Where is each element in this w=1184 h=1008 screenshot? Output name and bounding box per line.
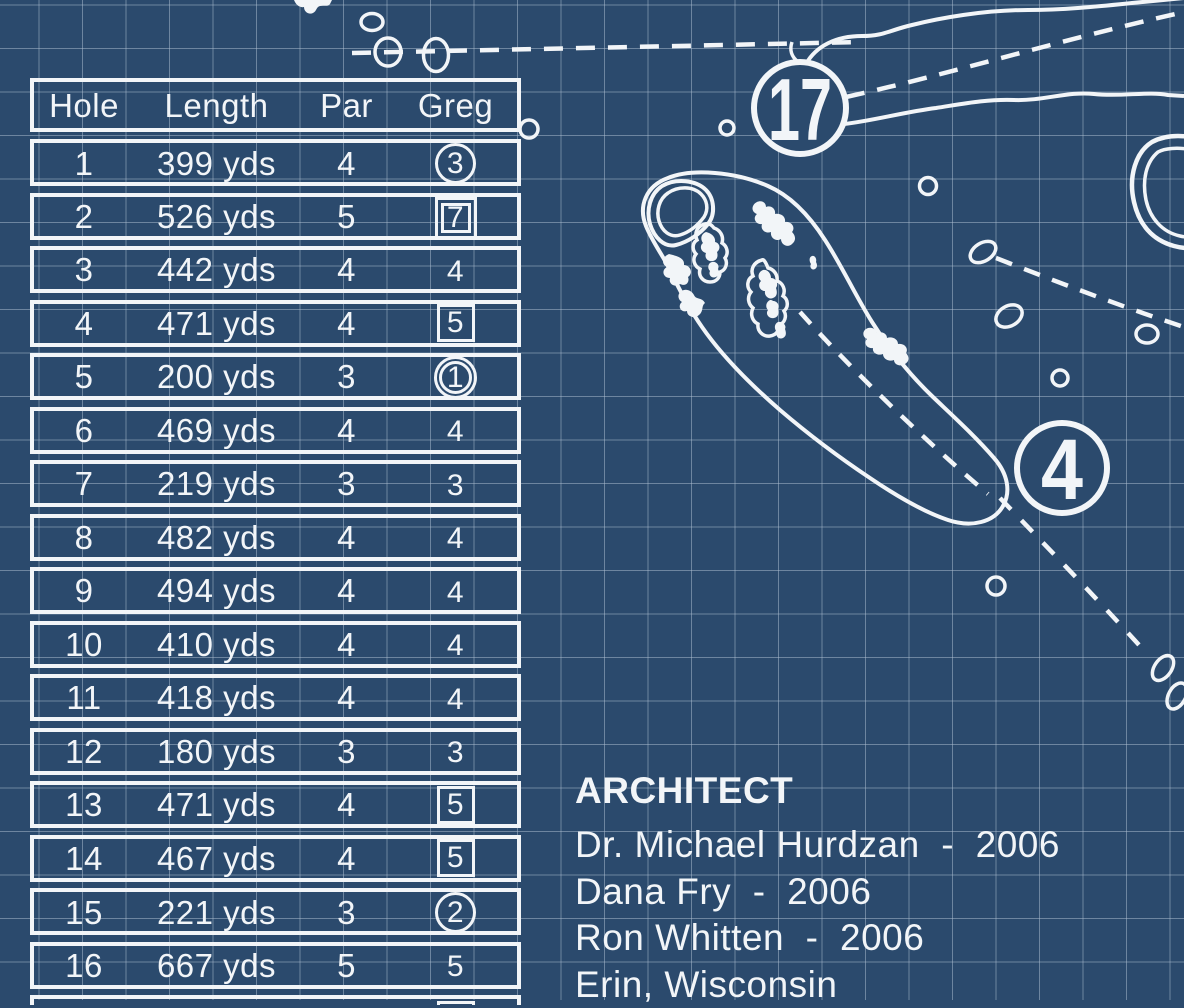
score-marker-circle: 2 bbox=[435, 892, 476, 933]
tee-ellipse bbox=[1163, 680, 1184, 713]
cell-score: 4 bbox=[447, 681, 464, 715]
score-value: 4 bbox=[447, 631, 464, 661]
cell-score: 2 bbox=[435, 892, 476, 933]
architect-line: Erin, Wisconsin bbox=[575, 962, 1060, 1008]
architect-line: Ron Whitten - 2006 bbox=[575, 915, 1060, 962]
small-circle bbox=[920, 178, 937, 195]
cell-par: 3 bbox=[337, 896, 356, 929]
tee-ellipse bbox=[1148, 652, 1178, 685]
leader-line bbox=[791, 42, 798, 62]
cell-hole: 2 bbox=[75, 200, 94, 233]
target-line bbox=[996, 258, 1184, 327]
score-marker-circle: 3 bbox=[435, 143, 476, 184]
bunker bbox=[701, 232, 720, 261]
cell-par: 4 bbox=[337, 307, 356, 340]
cell-length: 221 yds bbox=[157, 896, 276, 929]
cell-hole: 9 bbox=[75, 574, 94, 607]
architect-heading: ARCHITECT bbox=[575, 770, 1060, 812]
cell-score: 4 bbox=[447, 413, 464, 447]
cell-hole: 5 bbox=[75, 360, 94, 393]
cell-hole: 8 bbox=[75, 521, 94, 554]
small-circle bbox=[1136, 325, 1158, 343]
table-row: 15221 yds32 bbox=[30, 888, 521, 935]
tee-ellipse bbox=[424, 39, 449, 72]
header-length: Length bbox=[165, 89, 269, 122]
cell-length: 399 yds bbox=[157, 147, 276, 180]
table-row: 2526 yds57 bbox=[30, 193, 521, 240]
cell-par: 4 bbox=[337, 628, 356, 661]
tee-ellipse bbox=[992, 300, 1026, 331]
cell-score: 3 bbox=[447, 467, 464, 501]
bunker bbox=[294, 0, 332, 14]
cell-length: 219 yds bbox=[157, 467, 276, 500]
table-row: 4471 yds45 bbox=[30, 300, 521, 347]
score-value: 4 bbox=[447, 578, 464, 608]
score-marker-square bbox=[437, 1001, 475, 1005]
hole-4-label: 4 bbox=[1041, 422, 1083, 518]
cell-score: 1 bbox=[439, 359, 472, 395]
tee-ellipse bbox=[361, 14, 383, 31]
cell-length: 467 yds bbox=[157, 842, 276, 875]
score-value: 4 bbox=[447, 524, 464, 554]
bunker bbox=[708, 262, 719, 278]
cell-hole: 15 bbox=[65, 896, 103, 929]
cell-hole: 4 bbox=[75, 307, 94, 340]
table-row: 12180 yds33 bbox=[30, 728, 521, 775]
cell-length: 471 yds bbox=[157, 788, 276, 821]
cell-par: 5 bbox=[337, 200, 356, 233]
header-greg: Greg bbox=[418, 89, 493, 122]
cell-length: 494 yds bbox=[157, 574, 276, 607]
cell-par: 3 bbox=[337, 735, 356, 768]
scorecard: Hole Length Par Greg 1399 yds432526 yds5… bbox=[30, 78, 521, 1005]
cell-par: 3 bbox=[337, 360, 356, 393]
fairway-17-upper-edge bbox=[806, 0, 1184, 64]
cell-score: 4 bbox=[447, 574, 464, 608]
cell-hole: 3 bbox=[75, 253, 94, 286]
table-row: 16667 yds55 bbox=[30, 942, 521, 989]
score-marker-double-square: 7 bbox=[441, 203, 471, 233]
cell-length: 482 yds bbox=[157, 521, 276, 554]
cell-score: 4 bbox=[447, 520, 464, 554]
hole-17-label: 17 bbox=[768, 60, 832, 159]
table-row: 8482 yds44 bbox=[30, 514, 521, 561]
cell-score: 5 bbox=[447, 948, 464, 982]
score-marker-square: 5 bbox=[437, 839, 475, 877]
architect-line: Dr. Michael Hurdzan - 2006 bbox=[575, 822, 1060, 869]
cell-length: 200 yds bbox=[157, 360, 276, 393]
scorecard-rows: 1399 yds432526 yds573442 yds444471 yds45… bbox=[30, 139, 521, 1005]
small-circle bbox=[1052, 370, 1068, 386]
cell-length: 471 yds bbox=[157, 307, 276, 340]
header-par: Par bbox=[320, 89, 373, 122]
table-row-partial bbox=[30, 995, 521, 1005]
cell-hole: 6 bbox=[75, 414, 94, 447]
cell-hole: 10 bbox=[65, 628, 103, 661]
header-hole: Hole bbox=[49, 89, 119, 122]
hole-17-marker: 17 bbox=[754, 60, 846, 159]
score-value: 3 bbox=[447, 471, 464, 501]
fairway-17-lower-edge bbox=[844, 93, 1184, 124]
architect-block: ARCHITECT Dr. Michael Hurdzan - 2006 Dan… bbox=[575, 770, 1060, 1008]
cell-length: 410 yds bbox=[157, 628, 276, 661]
bunker bbox=[766, 300, 778, 318]
bunker bbox=[863, 328, 908, 366]
cell-score: 5 bbox=[437, 839, 475, 877]
cell-par: 4 bbox=[337, 521, 356, 554]
cell-length: 418 yds bbox=[157, 681, 276, 714]
cell-par: 4 bbox=[337, 842, 356, 875]
cell-hole: 12 bbox=[65, 735, 103, 768]
cell-score: 5 bbox=[437, 786, 475, 824]
cell-hole: 14 bbox=[65, 842, 103, 875]
cell-par: 4 bbox=[337, 147, 356, 180]
small-circle bbox=[520, 120, 538, 138]
cell-length: 180 yds bbox=[157, 735, 276, 768]
target-line bbox=[846, 12, 1184, 97]
table-row: 6469 yds44 bbox=[30, 407, 521, 454]
small-circle bbox=[720, 121, 734, 135]
cell-score: 3 bbox=[447, 734, 464, 768]
score-marker-double-circle: 1 bbox=[439, 361, 472, 394]
cell-par: 4 bbox=[337, 681, 356, 714]
cell-length: 526 yds bbox=[157, 200, 276, 233]
bunker bbox=[753, 201, 796, 246]
cell-score: 7 bbox=[441, 199, 471, 233]
cell-par: 3 bbox=[337, 467, 356, 500]
bunker bbox=[810, 256, 817, 270]
cell-par: 4 bbox=[337, 253, 356, 286]
table-row: 10410 yds44 bbox=[30, 621, 521, 668]
table-row: 5200 yds31 bbox=[30, 353, 521, 400]
cell-length: 667 yds bbox=[157, 949, 276, 982]
table-row: 7219 yds33 bbox=[30, 460, 521, 507]
table-row: 13471 yds45 bbox=[30, 781, 521, 828]
table-row: 11418 yds44 bbox=[30, 674, 521, 721]
tee-ellipse bbox=[966, 237, 999, 267]
cell-length: 442 yds bbox=[157, 253, 276, 286]
bunker bbox=[663, 254, 691, 286]
score-value: 4 bbox=[447, 417, 464, 447]
cell-par: 4 bbox=[337, 788, 356, 821]
green-right-inner bbox=[1145, 148, 1184, 237]
score-value: 5 bbox=[447, 952, 464, 982]
cell-length: 469 yds bbox=[157, 414, 276, 447]
score-value: 4 bbox=[447, 685, 464, 715]
cell-score: 3 bbox=[435, 143, 476, 184]
cell-score: 4 bbox=[447, 253, 464, 287]
cell-par: 4 bbox=[337, 574, 356, 607]
small-circle bbox=[987, 577, 1005, 595]
cell-score: 5 bbox=[437, 304, 475, 342]
cell-hole: 11 bbox=[66, 681, 101, 714]
cell-hole: 16 bbox=[65, 949, 103, 982]
hole-4-marker: 4 bbox=[1017, 422, 1107, 518]
cell-hole: 1 bbox=[75, 147, 94, 180]
cell-par: 5 bbox=[337, 949, 356, 982]
score-marker-square: 5 bbox=[437, 786, 475, 824]
scorecard-header-row: Hole Length Par Greg bbox=[30, 78, 521, 132]
table-row: 3442 yds44 bbox=[30, 246, 521, 293]
target-line bbox=[1000, 498, 1148, 655]
score-marker-square: 5 bbox=[437, 304, 475, 342]
cell-par: 4 bbox=[337, 414, 356, 447]
cell-hole: 13 bbox=[65, 788, 103, 821]
score-value: 3 bbox=[447, 738, 464, 768]
score-value: 4 bbox=[447, 257, 464, 287]
bunker bbox=[678, 290, 705, 317]
cell-score: 4 bbox=[447, 627, 464, 661]
architect-line: Dana Fry - 2006 bbox=[575, 869, 1060, 916]
table-row: 1399 yds43 bbox=[30, 139, 521, 186]
table-row: 14467 yds45 bbox=[30, 835, 521, 882]
table-row: 9494 yds44 bbox=[30, 567, 521, 614]
bunker bbox=[775, 322, 786, 339]
cell-hole: 7 bbox=[75, 467, 94, 500]
